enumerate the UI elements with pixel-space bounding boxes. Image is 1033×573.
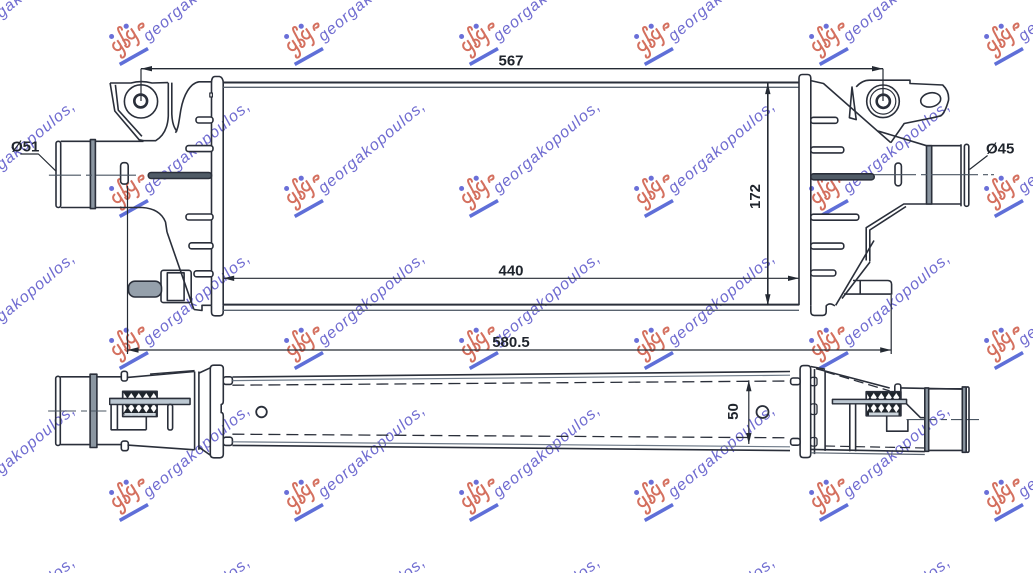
svg-text:567: 567: [498, 53, 523, 70]
svg-text:Ø45: Ø45: [986, 141, 1014, 158]
svg-text:50: 50: [725, 403, 742, 420]
svg-text:172: 172: [747, 184, 764, 209]
svg-text:440: 440: [498, 263, 523, 280]
svg-text:Ø51: Ø51: [11, 139, 39, 156]
svg-text:580.5: 580.5: [492, 334, 530, 351]
